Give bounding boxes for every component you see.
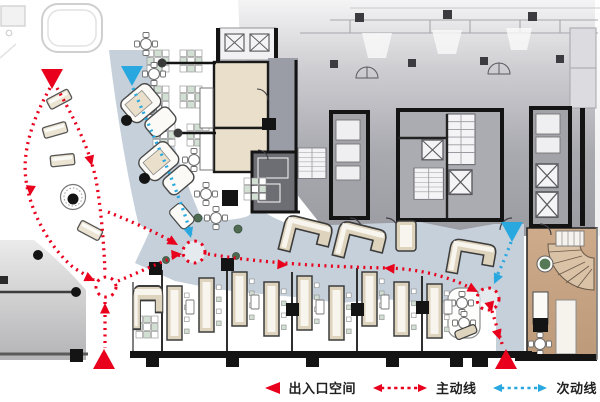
route-node (183, 241, 205, 263)
straight-stair-steps (556, 231, 584, 246)
private-room (214, 62, 268, 128)
floor-plan-screenshot: 出入口空间主动线次动线 (0, 0, 600, 402)
spiral-feature (61, 185, 86, 210)
legend-dashed-arrow-icon (491, 382, 549, 394)
legend-item-secondary-route: 次动线 (491, 378, 597, 397)
legend-label: 次动线 (556, 378, 597, 397)
brown-stair-area (527, 228, 597, 361)
legend-triangle-icon (263, 381, 281, 395)
legend-label: 出入口空间 (288, 378, 356, 397)
legend: 出入口空间主动线次动线 (263, 378, 597, 397)
band-white-pocket (448, 288, 480, 340)
legend-item-entrance-space: 出入口空间 (263, 378, 356, 397)
legend-dashed-arrow-icon (371, 382, 429, 394)
core-wall-clusters (331, 108, 585, 235)
dark-room (252, 152, 296, 212)
floor-plan-svg (0, 0, 600, 402)
route-node (96, 277, 116, 297)
legend-label: 主动线 (436, 378, 477, 397)
legend-item-main-route: 主动线 (371, 378, 477, 397)
